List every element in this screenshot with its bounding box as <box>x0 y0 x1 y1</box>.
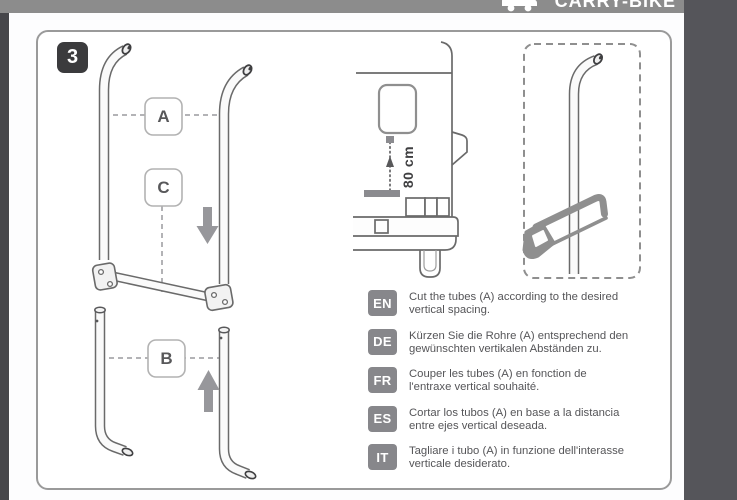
measurement-markers <box>364 136 400 197</box>
tubes-assembly-diagram: A C B <box>58 38 298 486</box>
language-badge-fr: FR <box>368 367 397 393</box>
instruction-row-en: EN Cut the tubes (A) according to the de… <box>368 290 683 317</box>
arrow-down-icon <box>197 207 219 244</box>
lower-tube-left <box>95 307 134 457</box>
app-header: CARRY-BIKE <box>0 0 684 13</box>
page-left-edge <box>0 12 9 500</box>
brand-title: CARRY-BIKE <box>555 0 676 12</box>
upper-tube-right <box>224 64 253 284</box>
instruction-text-es: Cortar los tubos (A) en base a la distan… <box>409 406 619 433</box>
language-badge-en: EN <box>368 290 397 316</box>
instructions-list: EN Cut the tubes (A) according to the de… <box>368 290 683 471</box>
manual-page: CARRY-BIKE 3 <box>0 0 737 500</box>
crossbar <box>92 262 234 311</box>
label-a-box: A <box>145 98 182 135</box>
label-c: C <box>157 178 169 197</box>
instruction-row-de: DE Kürzen Sie die Rohre (A) entsprechend… <box>368 329 683 356</box>
measurement-label: 80 cm <box>400 146 416 188</box>
label-a: A <box>157 107 169 126</box>
vehicle-measurement-diagram: 80 cm <box>353 40 503 290</box>
language-badge-es: ES <box>368 406 397 432</box>
tube-to-cut <box>574 53 604 274</box>
upper-tube-left <box>104 43 132 260</box>
instruction-text-fr: Couper les tubes (A) en fonction de l'en… <box>409 367 587 394</box>
label-b-box: B <box>148 340 185 377</box>
page-right-edge <box>684 0 737 500</box>
lower-tube-right <box>219 327 257 480</box>
instruction-row-fr: FR Couper les tubes (A) en fonction de l… <box>368 367 683 394</box>
instruction-text-en: Cut the tubes (A) according to the desir… <box>409 290 618 317</box>
instruction-row-es: ES Cortar los tubos (A) en base a la dis… <box>368 406 683 433</box>
instruction-text-it: Tagliare i tubo (A) in funzione dell'int… <box>409 444 624 471</box>
hacksaw-icon <box>524 198 606 258</box>
label-b: B <box>160 349 172 368</box>
language-badge-it: IT <box>368 444 397 470</box>
label-c-box: C <box>145 169 182 206</box>
arrow-up-icon <box>198 370 220 412</box>
instruction-row-it: IT Tagliare i tubo (A) in funzione dell'… <box>368 444 683 471</box>
tube-cutting-detail-diagram <box>516 38 646 284</box>
instruction-text-de: Kürzen Sie die Rohre (A) entsprechend de… <box>409 329 628 356</box>
language-badge-de: DE <box>368 329 397 355</box>
instruction-panel: 3 <box>36 30 672 490</box>
van-with-bike-icon <box>500 0 552 13</box>
